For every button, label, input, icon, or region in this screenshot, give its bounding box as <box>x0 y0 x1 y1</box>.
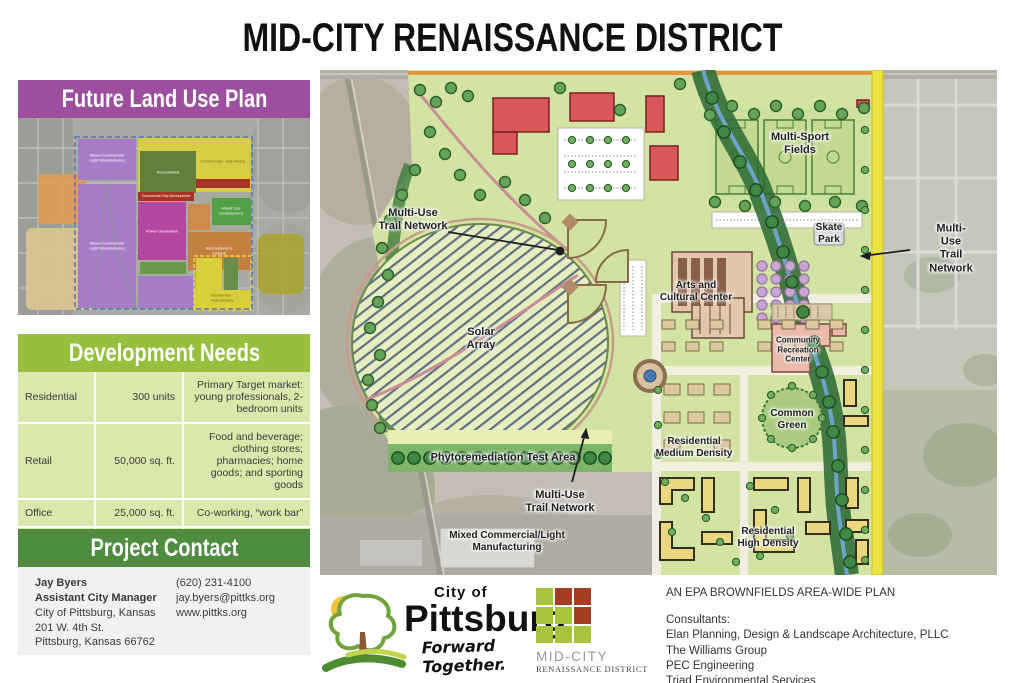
page-title-text: MID-CITY RENAISSANCE DISTRICT <box>242 16 782 61</box>
land-use-header-text: Future Land Use Plan <box>61 85 267 114</box>
site-plan-map: Multi-Use Trail Network Multi-Sport Fiel… <box>320 70 997 575</box>
site-plan-graphic <box>320 70 997 575</box>
project-contact-header: Project Contact <box>18 529 310 567</box>
credits-block: AN EPA BROWNFIELDS AREA-WIDE PLAN Consul… <box>666 586 1016 683</box>
contact-website: www.pittks.org <box>176 606 275 621</box>
map-label-solar-array: Solar Array <box>467 326 496 352</box>
contact-city: Pittsburg, Kansas 66762 <box>35 635 157 650</box>
contact-phone: (620) 231-4100 <box>176 576 275 591</box>
consultant-line: PEC Engineering <box>666 659 1016 674</box>
development-needs-header: Development Needs <box>18 334 310 372</box>
dn-row1-description: Food and beverage; clothing stores; phar… <box>184 424 310 498</box>
consultant-line: Elan Planning, Design & Landscape Archit… <box>666 628 1016 643</box>
consultants-label: Consultants: <box>666 613 1016 628</box>
mid-city-district-logo: MID-CITY RENAISSANCE DISTRICT <box>536 588 656 674</box>
dn-row1-amount: 50,000 sq. ft. <box>96 424 182 498</box>
map-label-mixed-commercial: Mixed Commercial/Light Manufacturing <box>449 530 565 554</box>
map-label-arts-cultural-center: Arts and Cultural Center <box>660 280 732 304</box>
contact-left-column: Jay Byers Assistant City Manager City of… <box>35 576 157 650</box>
map-label-residential-high-density: Residential High Density <box>737 526 798 550</box>
project-contact-header-text: Project Contact <box>90 534 238 563</box>
consultant-line: The Williams Group <box>666 644 1016 659</box>
map-label-trail-bottom: Multi-Use Trail Network <box>525 489 594 515</box>
map-label-multi-sport-fields: Multi-Sport Fields <box>771 131 829 157</box>
dn-row0-amount: 300 units <box>96 372 182 422</box>
development-needs-header-text: Development Needs <box>68 339 259 368</box>
pittsburg-tree-icon <box>318 584 410 676</box>
map-label-residential-medium-density: Residential Medium Density <box>656 436 733 460</box>
dn-row1-category: Retail <box>18 424 94 498</box>
dn-row2-description: Co-working, “work bar” <box>184 500 310 526</box>
mid-city-logo-name: MID-CITY <box>536 649 656 664</box>
contact-email: jay.byers@pittks.org <box>176 591 275 606</box>
panel-project-contact: Project Contact Jay Byers Assistant City… <box>18 529 310 655</box>
mid-city-logo-subtitle: RENAISSANCE DISTRICT <box>536 664 656 674</box>
city-of-pittsburg-logo: City of Pittsburg Forward Together. <box>318 584 533 676</box>
contact-role: Assistant City Manager <box>35 591 157 606</box>
future-land-use-map: Mixed Commercial/ Light Manufacturing Re… <box>18 118 310 315</box>
contact-address: 201 W. 4th St. <box>35 621 157 636</box>
land-use-map-graphic <box>18 118 310 315</box>
map-label-phytoremediation: Phytoremediation Test Area <box>431 451 576 464</box>
map-label-common-green: Common Green <box>770 408 813 432</box>
plan-type: AN EPA BROWNFIELDS AREA-WIDE PLAN <box>666 586 1016 601</box>
dn-row0-category: Residential <box>18 372 94 422</box>
map-label-trail-left: Multi-Use Trail Network <box>378 207 447 233</box>
dn-row0-description: Primary Target market: young professiona… <box>184 372 310 422</box>
contact-right-column: (620) 231-4100 jay.byers@pittks.org www.… <box>176 576 275 621</box>
map-label-skate-park: Skate Park <box>816 222 843 246</box>
dn-row2-amount: 25,000 sq. ft. <box>96 500 182 526</box>
mid-city-grid-icon <box>536 588 656 643</box>
dn-row2-category: Office <box>18 500 94 526</box>
project-contact-body: Jay Byers Assistant City Manager City of… <box>18 567 310 655</box>
panel-future-land-use: Future Land Use Plan <box>18 80 310 315</box>
consultant-line: Triad Environmental Services <box>666 674 1016 683</box>
page-title: MID-CITY RENAISSANCE DISTRICT <box>0 16 1024 61</box>
land-use-header: Future Land Use Plan <box>18 80 310 118</box>
contact-org: City of Pittsburg, Kansas <box>35 606 157 621</box>
poster: MID-CITY RENAISSANCE DISTRICT Future Lan… <box>0 0 1024 683</box>
contact-name: Jay Byers <box>35 576 157 591</box>
map-label-trail-right: Multi-Use Trail Network <box>928 223 974 276</box>
map-label-community-recreation-center: Community Recreation Center <box>776 336 820 365</box>
